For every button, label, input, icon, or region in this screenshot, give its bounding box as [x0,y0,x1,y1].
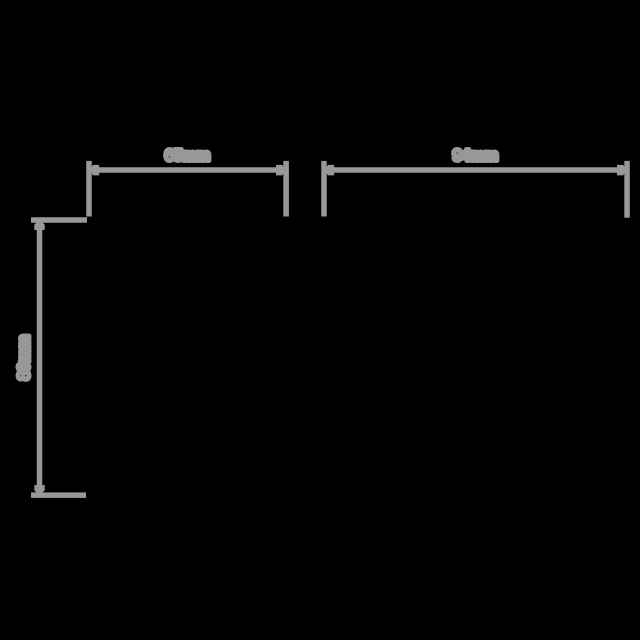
svg-text:80mm: 80mm [16,335,33,380]
svg-text:94mm: 94mm [453,148,498,165]
svg-text:65mm: 65mm [165,148,210,165]
